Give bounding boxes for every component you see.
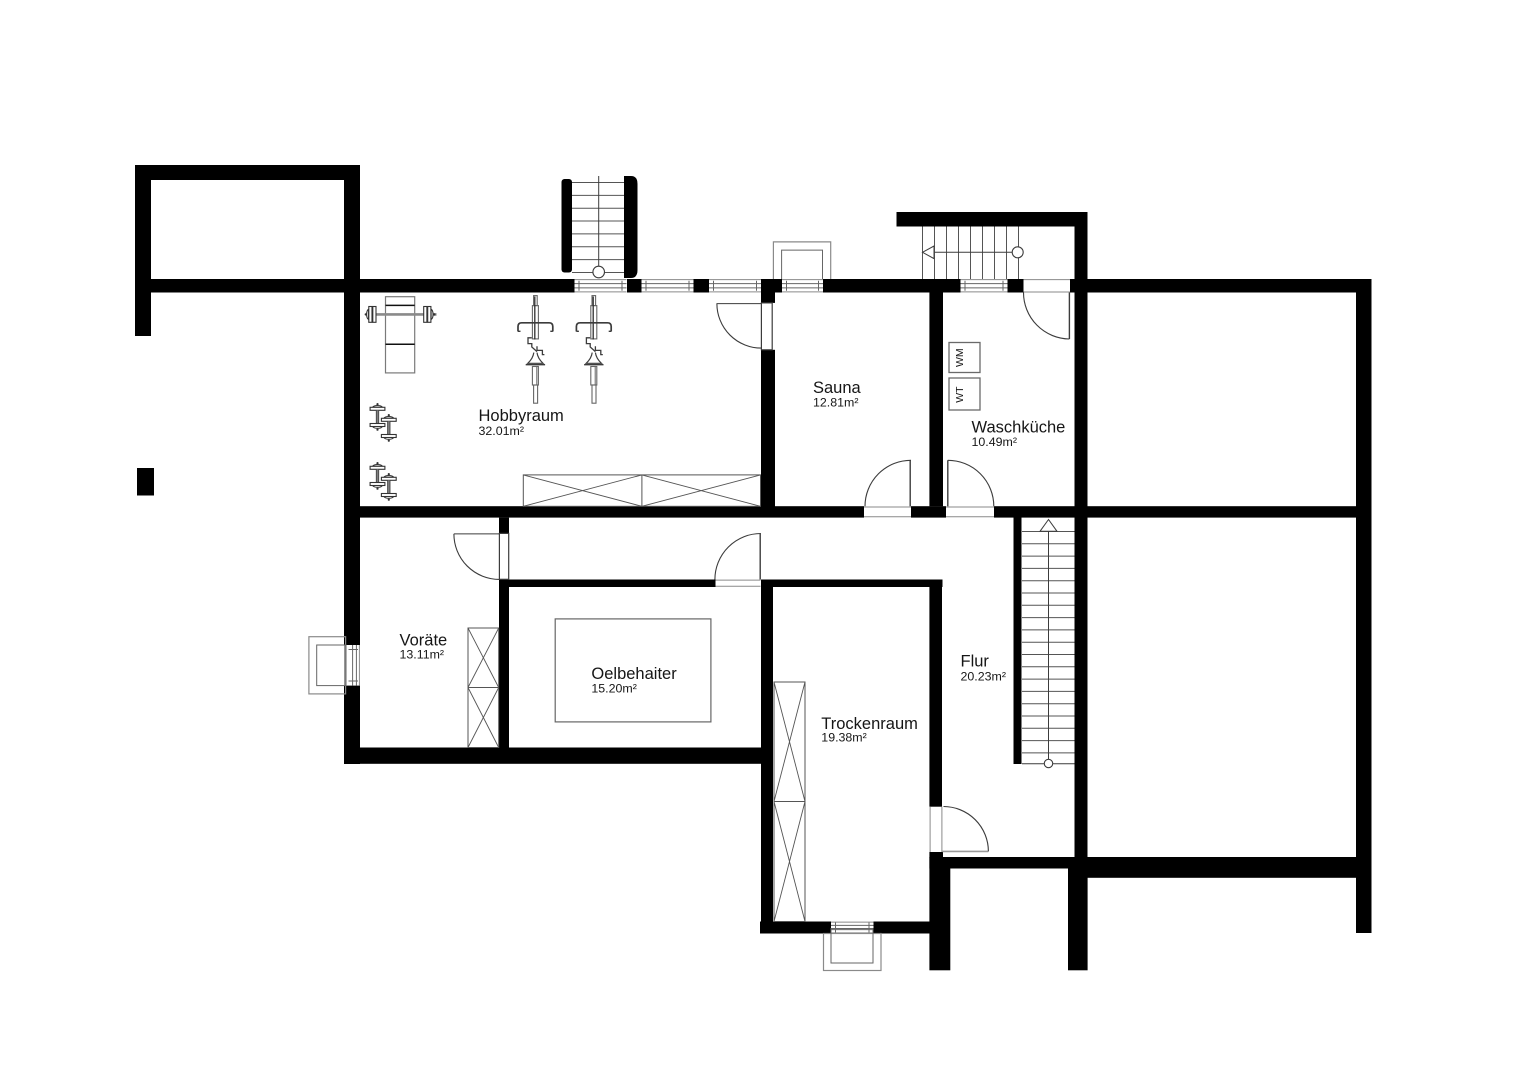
svg-text:WT: WT [954,386,966,403]
svg-text:WM: WM [954,348,966,367]
svg-text:Flur: Flur [961,653,990,671]
svg-text:15.20m²: 15.20m² [591,682,636,696]
svg-text:Sauna: Sauna [813,379,862,397]
svg-text:12.81m²: 12.81m² [813,396,858,410]
svg-text:32.01m²: 32.01m² [479,424,524,438]
svg-text:20.23m²: 20.23m² [961,670,1006,684]
svg-text:19.38m²: 19.38m² [821,731,866,745]
svg-text:Oelbehaiter: Oelbehaiter [591,665,677,683]
svg-text:10.49m²: 10.49m² [972,435,1017,449]
svg-text:Hobbyraum: Hobbyraum [479,407,564,425]
svg-text:13.11m²: 13.11m² [400,648,445,662]
svg-text:Waschküche: Waschküche [972,419,1066,437]
